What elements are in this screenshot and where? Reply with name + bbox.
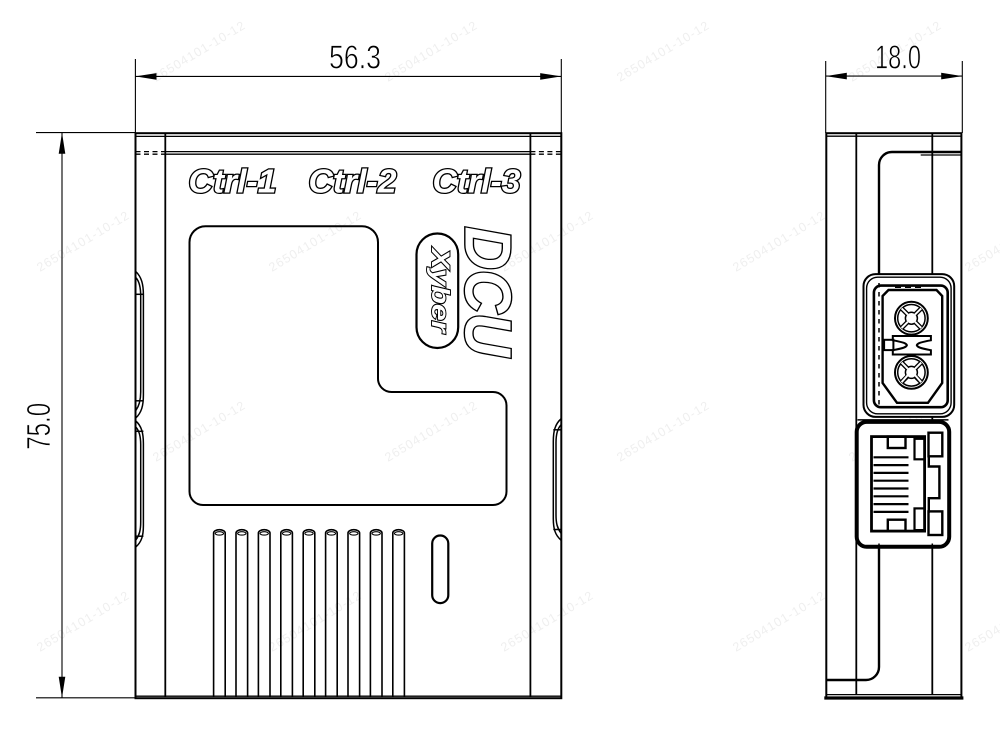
svg-text:Ctrl-1: Ctrl-1 xyxy=(189,163,277,200)
svg-text:56.3: 56.3 xyxy=(329,39,381,76)
svg-text:75.0: 75.0 xyxy=(20,403,57,450)
svg-text:Ctrl-3: Ctrl-3 xyxy=(433,163,521,200)
svg-text:Ctrl-2: Ctrl-2 xyxy=(309,163,398,200)
svg-text:Xyber: Xyber xyxy=(426,246,454,334)
svg-text:18.0: 18.0 xyxy=(875,39,921,76)
svg-text:DCU: DCU xyxy=(452,227,525,359)
